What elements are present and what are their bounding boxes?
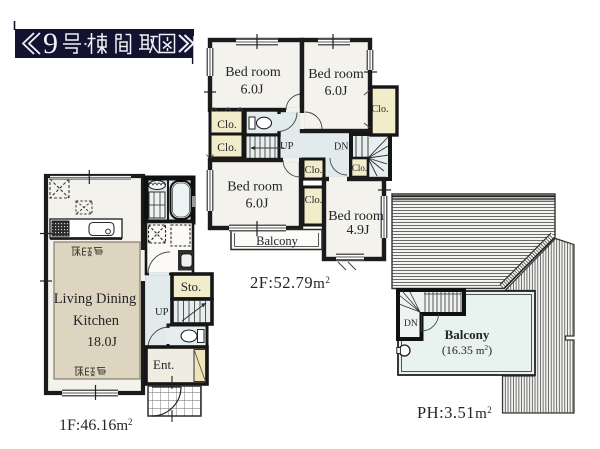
svg-text:Living Dining: Living Dining	[54, 291, 137, 307]
svg-text:2F:52.79m2: 2F:52.79m2	[250, 273, 330, 292]
svg-text:1F:46.16m2: 1F:46.16m2	[59, 417, 133, 434]
svg-text:Sto.: Sto.	[181, 279, 202, 294]
svg-text:DN: DN	[334, 142, 348, 153]
svg-text:4.9J: 4.9J	[347, 223, 371, 238]
svg-text:UP: UP	[155, 307, 169, 318]
svg-text:Ent.: Ent.	[153, 357, 174, 372]
svg-text:6.0J: 6.0J	[241, 83, 265, 98]
svg-text:DN: DN	[404, 319, 418, 329]
svg-text:6.0J: 6.0J	[246, 197, 270, 212]
svg-text:Bed room: Bed room	[225, 65, 281, 80]
svg-text:Clo.: Clo.	[305, 165, 323, 176]
svg-text:Balcony: Balcony	[445, 327, 490, 342]
svg-text:Kitchen: Kitchen	[73, 313, 120, 329]
svg-text:PH:3.51m2: PH:3.51m2	[417, 403, 492, 422]
svg-text:UP: UP	[280, 141, 294, 152]
svg-text:18.0J: 18.0J	[87, 335, 118, 350]
svg-text:Balcony: Balcony	[256, 234, 298, 248]
svg-text:Bed room: Bed room	[308, 67, 364, 82]
svg-text:Clo.: Clo.	[305, 195, 323, 206]
svg-text:9: 9	[43, 27, 58, 60]
svg-text:Clo.: Clo.	[217, 119, 237, 131]
svg-text:6.0J: 6.0J	[325, 84, 349, 99]
svg-text:Clo.: Clo.	[372, 104, 389, 115]
svg-text:Clo.: Clo.	[217, 142, 237, 154]
svg-text:Clo.: Clo.	[352, 163, 367, 173]
svg-text:Bed room: Bed room	[328, 209, 384, 224]
svg-text:Bed room: Bed room	[227, 180, 283, 195]
